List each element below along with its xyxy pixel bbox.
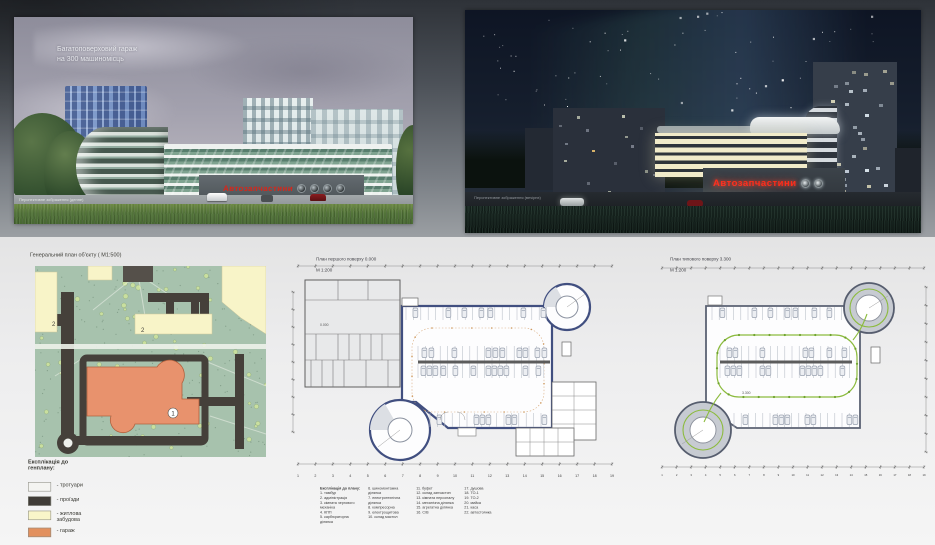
- lit-window: [876, 167, 880, 170]
- svg-text:1: 1: [297, 474, 299, 478]
- lit-window: [865, 114, 869, 117]
- lit-window: [879, 104, 883, 107]
- plan-legend-item: 3. кімната чергового механіка: [320, 500, 361, 510]
- lit-window: [586, 129, 589, 132]
- axis-labels: 12345678910111213141516171819: [297, 474, 614, 478]
- ramp-bottom-left: [675, 402, 731, 458]
- legend-label: - житлова забудова: [57, 511, 82, 523]
- central-wall: [720, 361, 852, 364]
- lit-window: [853, 126, 857, 129]
- svg-text:19: 19: [610, 474, 614, 478]
- lit-window: [625, 136, 628, 139]
- ramp-top-right: [544, 284, 590, 330]
- brand-badge-icon: [310, 184, 319, 193]
- lit-window: [845, 170, 849, 173]
- plan-first-drawing: 0.000: [290, 262, 624, 482]
- svg-text:12: 12: [488, 474, 492, 478]
- brand-badge-icon: [336, 184, 345, 193]
- lit-window: [587, 182, 590, 185]
- siteplan-legend-title: Експлікація до генплану:: [28, 459, 155, 471]
- lit-window: [631, 145, 634, 148]
- svg-text:10: 10: [791, 473, 795, 477]
- svg-text:5: 5: [367, 474, 369, 478]
- plan-legend-item: 10. склад мастил: [368, 515, 409, 520]
- lit-window: [865, 169, 869, 172]
- svg-text:18: 18: [593, 474, 597, 478]
- project-title-line2: на 300 машиномісць: [57, 55, 137, 65]
- project-title-line1: Багатоповерховий гараж: [57, 45, 137, 55]
- svg-text:9: 9: [778, 473, 780, 477]
- svg-text:13: 13: [505, 474, 509, 478]
- svg-text:13: 13: [835, 473, 839, 477]
- lit-window: [645, 170, 648, 173]
- ramp-top-right: [844, 283, 894, 333]
- svg-text:17: 17: [893, 473, 897, 477]
- stars: [465, 10, 466, 11]
- legend-swatch: [28, 528, 51, 537]
- plan-typical-drawing: 3.300 12345678910111213141516171819: [654, 262, 934, 482]
- plan-legend-column: 6. шиномонтажна ділянка7. електротехнічн…: [368, 486, 409, 524]
- svg-text:16: 16: [879, 473, 883, 477]
- brand-badge-icon: [814, 179, 823, 188]
- lit-window: [592, 150, 595, 153]
- lit-window: [577, 116, 580, 119]
- legend-label: - гараж: [57, 528, 75, 534]
- plan-legend-item: 16. С/В: [416, 510, 457, 515]
- lit-window: [845, 103, 849, 106]
- lit-window: [837, 163, 841, 166]
- lit-window: [883, 70, 887, 73]
- svg-text:7: 7: [749, 473, 751, 477]
- footpath-main: [35, 344, 266, 349]
- svg-text:5: 5: [719, 473, 721, 477]
- cloud: [194, 39, 413, 103]
- lit-window: [867, 185, 871, 188]
- lit-window: [622, 115, 625, 118]
- lit-window: [834, 85, 838, 88]
- plan-legend-item: 22. автостоянка: [464, 510, 505, 515]
- svg-text:6: 6: [734, 473, 736, 477]
- svg-text:17: 17: [575, 474, 579, 478]
- legend-item: - тротуари: [28, 482, 155, 491]
- svg-text:12: 12: [821, 473, 825, 477]
- plan-legend-column: 11. буфет12. склад запчастин13. кімната …: [416, 486, 457, 524]
- plan-legend-column: 17. душова18. ТО-119. ТО-220. мийка21. к…: [464, 486, 505, 524]
- lit-window: [884, 184, 888, 187]
- lit-window: [640, 127, 643, 130]
- lit-window: [831, 100, 835, 103]
- brand-badges: [293, 184, 345, 193]
- entrance-stub: [458, 428, 476, 436]
- svg-text:8: 8: [419, 474, 421, 478]
- car: [207, 193, 227, 201]
- lit-window: [565, 143, 568, 146]
- brand-badges: [797, 179, 823, 188]
- legend-item: - гараж: [28, 528, 155, 537]
- brand-badge-icon: [801, 179, 810, 188]
- svg-text:19: 19: [922, 473, 926, 477]
- siteplan-title: Генеральний план об'єкту ( М1:500): [30, 252, 250, 259]
- car: [261, 195, 273, 202]
- stair-shaft: [871, 347, 880, 363]
- garage-canopy: [657, 126, 759, 133]
- entrance-canopy: [708, 296, 722, 305]
- legend-swatch: [28, 482, 51, 491]
- plan-legend-column: Експлікація до плану:1. тамбур2. адмініс…: [320, 486, 361, 524]
- brand-badge-icon: [297, 184, 306, 193]
- svg-text:4: 4: [349, 474, 351, 478]
- lit-window: [559, 125, 562, 128]
- lit-window: [614, 162, 617, 165]
- plan-legend-item: 7. електротехнічна ділянка: [368, 496, 409, 506]
- legend-label: - проїзди: [57, 496, 80, 502]
- lit-window: [858, 132, 862, 135]
- ramp-bottom-left: [370, 400, 430, 460]
- project-title: Багатоповерховий гараж на 300 машиномісц…: [57, 45, 137, 65]
- legend-swatch: [28, 511, 51, 520]
- lit-window: [849, 90, 853, 93]
- roundabout-island: [64, 439, 73, 448]
- siteplan-drawing: 1 2 2: [35, 266, 266, 457]
- night-rendering: Автозапчастини Перспективне зображення (…: [465, 10, 921, 233]
- central-wall: [418, 361, 550, 364]
- lit-window: [852, 71, 856, 74]
- svg-text:14: 14: [523, 474, 527, 478]
- legend-item: - житлова забудова: [28, 511, 155, 523]
- svg-text:15: 15: [864, 473, 868, 477]
- plan-legend: Експлікація до плану:1. тамбур2. адмініс…: [320, 486, 505, 524]
- day-caption: Перспективне зображення (денне): [19, 198, 119, 203]
- svg-text:14: 14: [850, 473, 854, 477]
- siteplan-legend-rows: - тротуари- проїзди- житлова забудова- г…: [28, 482, 155, 537]
- annex-block: [305, 280, 400, 387]
- brand-badge-icon: [323, 184, 332, 193]
- legend-label: - тротуари: [57, 482, 83, 488]
- lit-window: [852, 155, 856, 158]
- lit-window: [890, 82, 894, 85]
- garage-canopy: [750, 117, 840, 134]
- svg-text:6: 6: [384, 474, 386, 478]
- legend-item: - проїзди: [28, 496, 155, 505]
- siteplan-legend: Експлікація до генплану: - тротуари- про…: [28, 459, 155, 542]
- svg-text:8: 8: [763, 473, 765, 477]
- svg-text:16: 16: [558, 474, 562, 478]
- svg-text:1: 1: [661, 473, 663, 477]
- level-mark: 0.000: [320, 323, 329, 327]
- plan-legend-item: 6. шиномонтажна ділянка: [368, 486, 409, 496]
- svg-text:2: 2: [314, 474, 316, 478]
- lit-window: [863, 147, 867, 150]
- existing-building: [123, 266, 153, 282]
- svg-text:9: 9: [437, 474, 439, 478]
- plan-legend-item: 5. карбюраторна ділянка: [320, 515, 361, 525]
- day-rendering: Автозапчастини Багатоповерховий гараж на…: [14, 17, 413, 224]
- svg-text:18: 18: [908, 473, 912, 477]
- lit-window: [564, 160, 567, 163]
- entrance-canopy: [402, 298, 418, 306]
- svg-text:11: 11: [806, 473, 809, 477]
- svg-text:3: 3: [690, 473, 692, 477]
- presentation-board: Автозапчастини Багатоповерховий гараж на…: [0, 0, 935, 545]
- car: [310, 194, 326, 201]
- lit-window: [861, 138, 865, 141]
- svg-text:7: 7: [402, 474, 404, 478]
- night-caption: Перспективне зображення (вечірнє): [474, 196, 574, 201]
- svg-text:15: 15: [540, 474, 544, 478]
- axis-labels: 12345678910111213141516171819: [661, 473, 926, 477]
- legend-swatch: [28, 496, 51, 505]
- level-mark: 3.300: [742, 391, 751, 395]
- lit-window: [845, 82, 849, 85]
- svg-text:3: 3: [332, 474, 334, 478]
- lit-window: [864, 73, 868, 76]
- lawn: [14, 204, 413, 224]
- garage-sign: Автозапчастини: [223, 184, 294, 193]
- lit-window: [863, 89, 867, 92]
- svg-text:4: 4: [705, 473, 707, 477]
- garage-round-tower: [76, 127, 168, 205]
- svg-text:11: 11: [471, 474, 475, 478]
- svg-text:2: 2: [676, 473, 678, 477]
- svg-text:10: 10: [453, 474, 457, 478]
- lawn: [465, 206, 921, 233]
- stair-shaft: [562, 342, 571, 356]
